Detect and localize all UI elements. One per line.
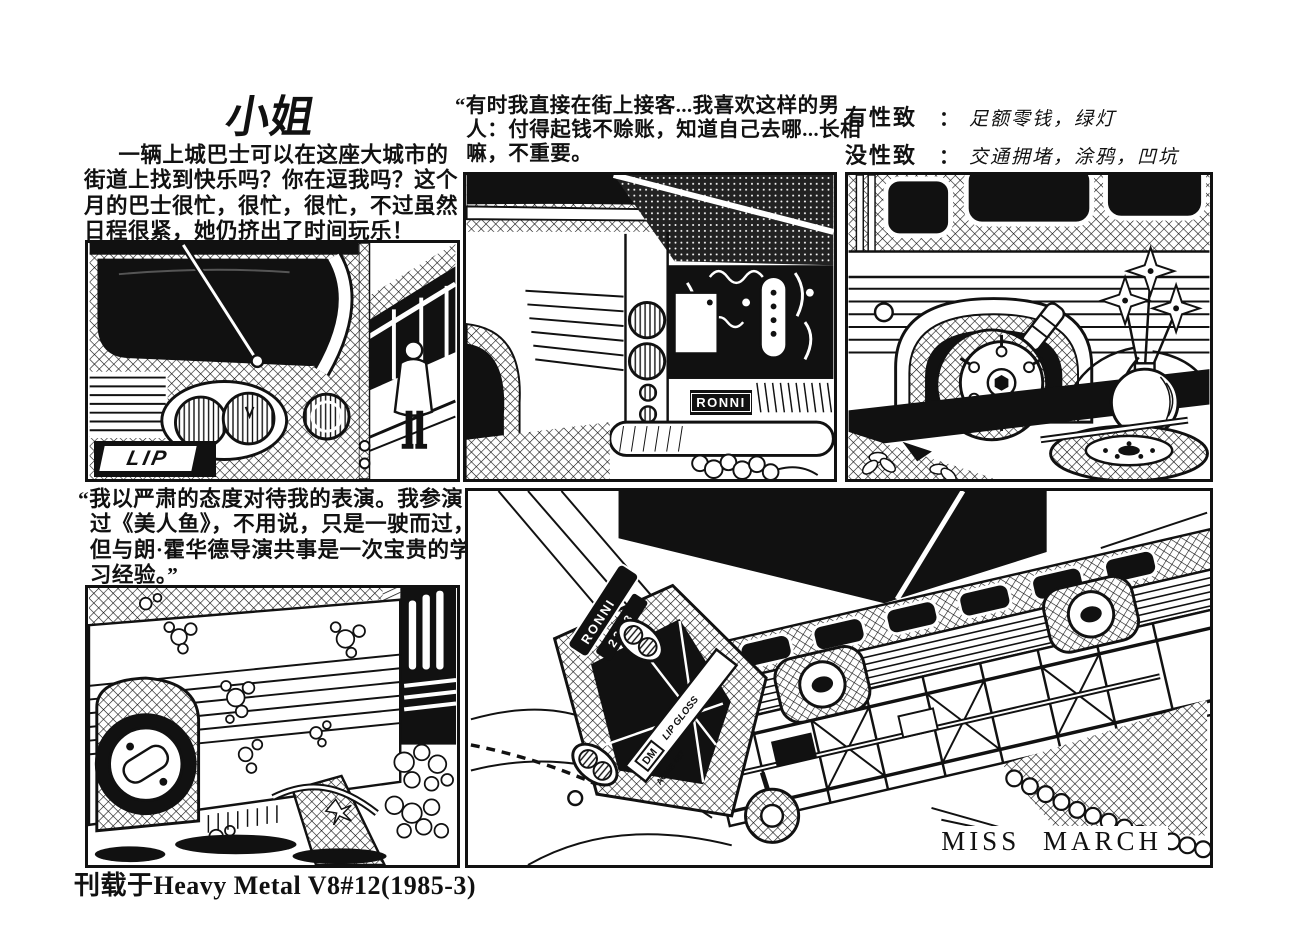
- bus-wash-illustration: [88, 588, 457, 865]
- bus-rear-illustration: [466, 175, 834, 479]
- rear-license-plate: RONNI: [688, 388, 754, 417]
- street-quote: “有时我直接在街上接客...我喜欢这样的男人：付得起钱不赊账，知道自己去哪...…: [455, 94, 862, 167]
- turn-offs-colon: ：: [929, 140, 969, 169]
- acting-quote: “我以严肃的态度对待我的表演。我参演过《美人鱼》，不用说，只是一驶而过，但与朗·…: [78, 487, 484, 588]
- turn-offs-label: 没性致: [845, 138, 929, 170]
- panel-bus-wash: [85, 585, 460, 868]
- overturned-bus-illustration: RONNI 2223: [468, 491, 1210, 865]
- source-caption: 刊载于Heavy Metal V8#12(1985-3): [74, 871, 476, 902]
- comic-page: 小姐 一辆上城巴士可以在这座大城市的街道上找到快乐吗？你在逗我吗？这个月的巴士很…: [0, 0, 1300, 939]
- panel-bus-front: LIP: [85, 240, 460, 482]
- turn-ons-label: 有性致: [845, 100, 929, 132]
- turn-ons-row: 有性致 ： 足额零钱，绿灯: [845, 100, 1116, 132]
- engine-bay: [668, 265, 834, 379]
- turn-offs-row: 没性致 ： 交通拥堵，涂鸦，凹坑: [845, 138, 1179, 170]
- miss-march-caption: MISS MARCH: [935, 826, 1168, 857]
- panel-bus-rear: RONNI: [463, 172, 837, 482]
- page-title: 小姐: [170, 92, 370, 144]
- bus-side-illustration: [848, 175, 1210, 479]
- front-wheel: [95, 678, 199, 831]
- intro-paragraph: 一辆上城巴士可以在这座大城市的街道上找到快乐吗？你在逗我吗？这个月的巴士很忙，很…: [84, 143, 464, 244]
- panel-bus-side-flowers: [845, 172, 1213, 482]
- turn-offs-value: 交通拥堵，涂鸦，凹坑: [969, 142, 1179, 169]
- turn-ons-value: 足额零钱，绿灯: [969, 104, 1116, 131]
- front-license-plate: LIP: [94, 441, 216, 477]
- turn-ons-colon: ：: [929, 102, 969, 131]
- grille-stripes: [90, 378, 166, 431]
- panel-centerfold: RONNI 2223: [465, 488, 1213, 868]
